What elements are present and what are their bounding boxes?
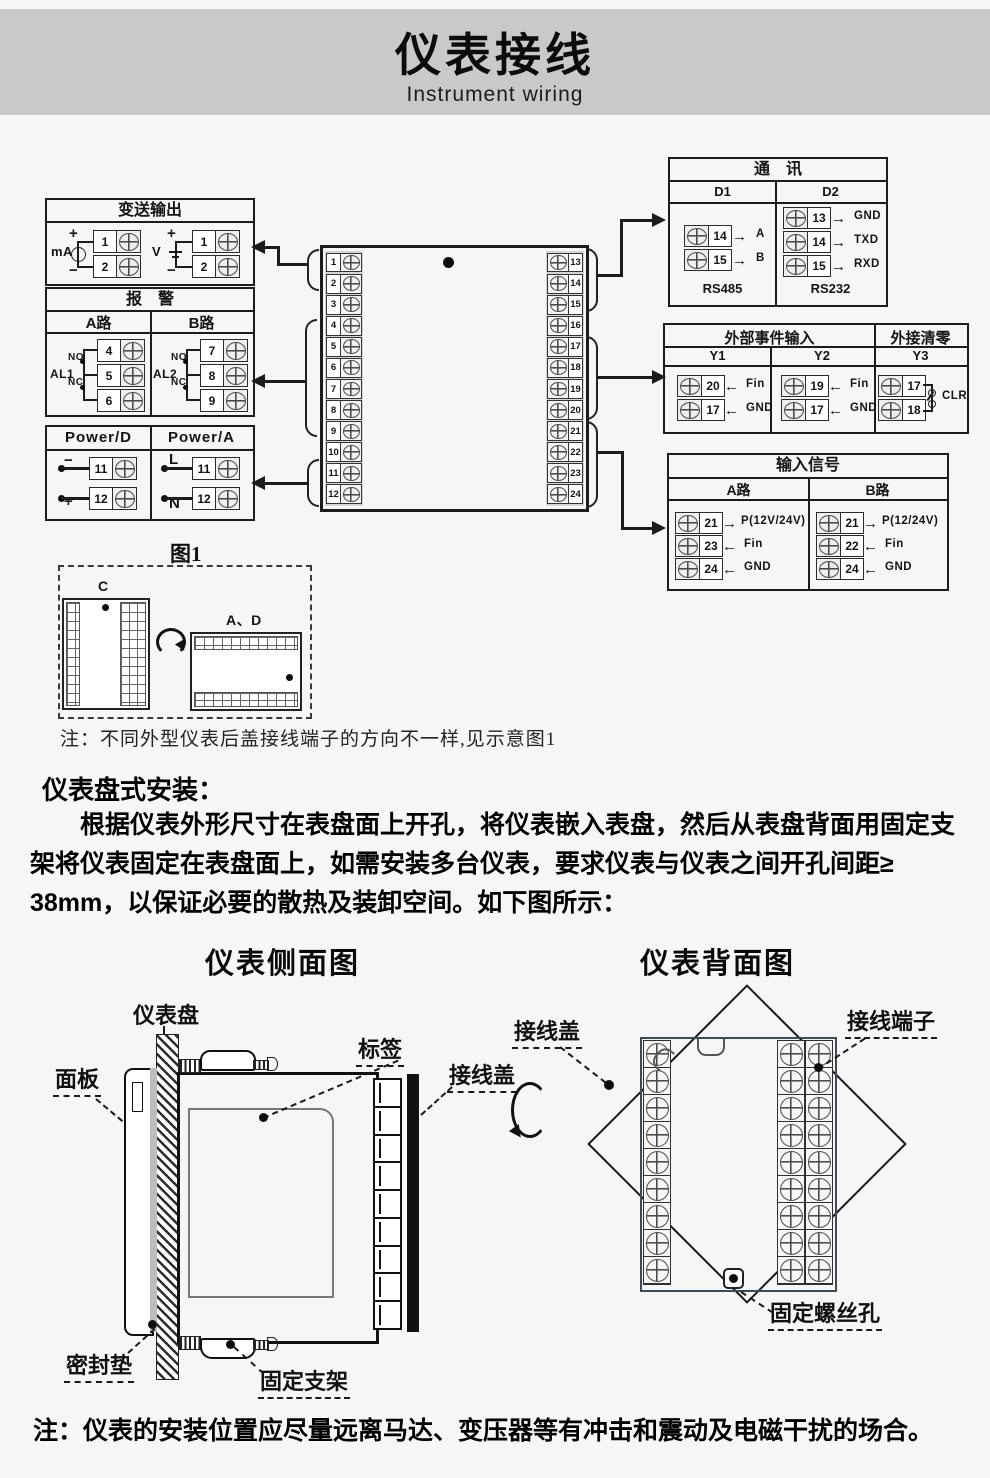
screw-icon [341, 464, 361, 482]
screw-icon [121, 365, 144, 386]
channel-a-header: A路 [669, 480, 808, 500]
signal-label: A [756, 228, 765, 240]
wire [186, 399, 200, 401]
screw-icon [224, 365, 247, 386]
arrow: → [722, 515, 736, 532]
screw-icon [806, 1068, 832, 1095]
connector [621, 451, 624, 530]
wire [175, 266, 192, 268]
screw-icon [879, 376, 902, 396]
shape-c [62, 598, 150, 710]
comm-box: 通 讯 D1 D2 14 → A 15 → B RS485 13 → GND 1… [668, 157, 888, 307]
brace [307, 249, 319, 291]
terminal: 11 [89, 457, 137, 480]
right-terminal-strip: 13 14 15 16 17 18 19 20 21 22 23 24 [546, 251, 584, 506]
divider [670, 202, 886, 204]
panel-board-label: 仪表盘 [133, 998, 199, 1030]
leader-dot [259, 1113, 268, 1122]
box-title: 通 讯 [670, 159, 886, 182]
arrow: ← [863, 538, 877, 555]
terminal: 24 [816, 558, 864, 580]
channel-a-header: A路 [47, 312, 150, 333]
screw-icon [685, 250, 708, 270]
power-d-header: Power/D [47, 429, 150, 446]
screw-icon [224, 390, 247, 411]
screw-icon [817, 559, 840, 579]
side-view-title: 仪表侧面图 [205, 940, 360, 982]
connector [620, 219, 623, 276]
terminal: 13 [783, 207, 831, 229]
arrow: → [732, 228, 746, 245]
signal-label: GND [850, 402, 877, 414]
screw-icon [113, 458, 136, 479]
current-source-icon [71, 247, 86, 262]
shape-ad-label: A、D [226, 610, 262, 630]
terminal: 9 [200, 389, 248, 412]
screw-dot [729, 1274, 738, 1283]
screw-icon [676, 513, 699, 533]
screw-icon [784, 256, 807, 276]
screw-head [267, 1057, 278, 1071]
screw-icon [341, 443, 361, 461]
comb-cell [375, 1247, 400, 1275]
signal-label: Fin [885, 538, 904, 550]
screw-icon [676, 559, 699, 579]
screw-icon [817, 513, 840, 533]
leader-dashed [559, 1046, 606, 1083]
terminal: 11 [192, 457, 240, 480]
screw-icon [548, 422, 568, 440]
screw-head [267, 1337, 278, 1351]
panel-wall [156, 1034, 179, 1380]
channel-b-header: B路 [808, 480, 947, 500]
arrow: → [831, 210, 845, 227]
rs232-label: RS232 [775, 281, 886, 296]
screw-icon [678, 400, 701, 420]
screw-icon [782, 376, 805, 396]
terminal: 14 [684, 225, 732, 247]
connector [596, 376, 653, 379]
fix-bracket-top [200, 1050, 256, 1071]
screw-icon [778, 1257, 804, 1284]
signal-label: Fin [850, 378, 869, 390]
comb-cell [375, 1163, 400, 1191]
event-title: 外部事件输入 [665, 327, 874, 348]
screw-icon [685, 226, 708, 246]
shape-ad [190, 632, 302, 711]
title-banner: 仪表接线 Instrument wiring [0, 9, 990, 115]
terminal: 2 [93, 255, 141, 278]
clr-label: CLR [942, 390, 967, 402]
terminal: 22 [816, 535, 864, 557]
rotate-arrow-icon [505, 1080, 549, 1142]
screw-icon [784, 208, 807, 228]
screw-icon [117, 256, 140, 277]
terminal: 23 [675, 535, 723, 557]
screw-icon [121, 340, 144, 361]
left-terminal-strip: 1 2 3 4 5 6 7 8 9 10 11 12 [325, 251, 363, 506]
screw-icon [644, 1122, 670, 1149]
leader-dot [604, 1080, 614, 1090]
install-paragraph: 根据仪表外形尺寸在表盘面上开孔，将仪表嵌入表盘，然后从表盘背面用固定支 架将仪表… [30, 806, 970, 923]
terminal: 18 [878, 399, 926, 421]
arrow: → [831, 234, 845, 251]
d1-header: D1 [670, 184, 775, 199]
terminal-strip [194, 692, 298, 707]
terminal: 6 [97, 389, 145, 412]
terminal: 8 [200, 364, 248, 387]
contact-dot [183, 359, 188, 364]
screw-icon [548, 317, 568, 335]
screw-icon [548, 464, 568, 482]
screw-icon [879, 400, 902, 420]
page-title: 仪表接线 [0, 19, 990, 85]
screw-icon [224, 340, 247, 361]
wire [61, 497, 89, 500]
screw-icon [548, 443, 568, 461]
body-label-area [188, 1108, 334, 1298]
screw-icon [341, 338, 361, 356]
brace [305, 319, 317, 437]
rs485-label: RS485 [670, 281, 775, 296]
shape-c-label: C [98, 578, 109, 594]
signal-label: Fin [746, 378, 765, 390]
wire [61, 467, 89, 470]
v-label: V [152, 244, 161, 259]
contact-dot [183, 385, 188, 390]
screw-icon [778, 1068, 804, 1095]
screw-icon [341, 485, 361, 503]
signal-label: Fin [744, 538, 763, 550]
screw-spring [179, 1336, 201, 1350]
plus-mark: + [69, 225, 78, 242]
bottom-note: 注：仪表的安装位置应尽量远离马达、变压器等有冲击和震动及电磁干扰的场合。 [33, 1412, 983, 1451]
screw-icon [341, 254, 361, 272]
terminal-strip [120, 602, 146, 706]
arrowhead-left [251, 476, 265, 490]
page-subtitle: Instrument wiring [0, 83, 990, 107]
center-terminal-block: 1 2 3 4 5 6 7 8 9 10 11 12 13 14 15 16 1… [320, 245, 589, 512]
signal-label: GND [746, 402, 773, 414]
screw-icon [778, 1176, 804, 1203]
fixing-screw-hole [723, 1268, 744, 1289]
screw-icon [817, 536, 840, 556]
clear-title: 外接清零 [874, 327, 967, 348]
wire [175, 241, 192, 243]
terminal: 5 [97, 364, 145, 387]
divider [808, 477, 810, 589]
wire [83, 374, 97, 376]
input-signal-box: 输入信号 A路 B路 21 → P(12V/24V) 23 ← Fin 24 ←… [667, 453, 949, 591]
screw-icon [113, 488, 136, 509]
screw-icon [548, 275, 568, 293]
screw-icon [548, 338, 568, 356]
screw-icon [644, 1095, 670, 1122]
arrow: → [732, 252, 746, 269]
back-view-title: 仪表背面图 [640, 940, 795, 982]
terminal-comb [373, 1078, 402, 1330]
terminal: 19 [781, 375, 829, 397]
leader-dot [148, 1320, 157, 1329]
connector [263, 380, 307, 383]
divider [150, 427, 152, 519]
screw-icon [778, 1122, 804, 1149]
leader-dot [814, 1063, 823, 1072]
screw-icon [216, 256, 239, 277]
box-title: 变送输出 [47, 200, 253, 223]
cover-bar [407, 1074, 419, 1332]
screw-icon [806, 1230, 832, 1257]
divider [874, 325, 876, 432]
connector [277, 246, 280, 265]
terminal: 20 [677, 375, 725, 397]
arrow: ← [863, 561, 877, 578]
screw-icon [778, 1095, 804, 1122]
terminal: 21 [675, 512, 723, 534]
wire [77, 266, 93, 268]
terminal: 15 [684, 249, 732, 271]
terminal: 15 [783, 255, 831, 277]
front-panel-label: 面板 [53, 1062, 101, 1094]
leader-dashed [420, 1086, 453, 1116]
screw-hole-label: 固定螺丝孔 [768, 1296, 882, 1328]
arrowhead-right [652, 213, 666, 227]
signal-label: GND [854, 210, 881, 222]
channel-b-header: B路 [150, 312, 253, 333]
arrow: ← [828, 378, 842, 395]
cover-label-back: 接线盖 [512, 1014, 582, 1046]
screw-icon [341, 380, 361, 398]
wire [186, 349, 200, 351]
signal-label: RXD [854, 258, 880, 270]
signal-label: TXD [854, 234, 879, 246]
screw-icon [341, 401, 361, 419]
signal-label: P(12/24V) [882, 515, 938, 527]
terminal: 17 [878, 375, 926, 397]
wire [164, 467, 192, 470]
screw-icon [121, 390, 144, 411]
screw-icon [548, 296, 568, 314]
screw-icon [216, 231, 239, 252]
screw-icon [806, 1095, 832, 1122]
screw-icon [782, 400, 805, 420]
screw-icon [548, 359, 568, 377]
terminal: 7 [200, 339, 248, 362]
arrowhead-left [251, 240, 265, 254]
signal-label: P(12V/24V) [741, 515, 805, 527]
screw-icon [644, 1149, 670, 1176]
divider [150, 312, 152, 415]
screw-icon [778, 1149, 804, 1176]
brace [586, 248, 598, 312]
wire [83, 399, 97, 401]
terminals-label: 接线端子 [845, 1004, 937, 1036]
screw-icon [216, 488, 239, 509]
wire [175, 241, 177, 267]
comb-cell [375, 1274, 400, 1302]
screw-spring [179, 1059, 201, 1073]
alarm-box: 报 警 A路 B路 AL1 NO NC 4 5 6 AL2 NO NC 7 8 … [45, 287, 255, 417]
terminal: 1 [93, 230, 141, 253]
contact-dot [80, 359, 85, 364]
screw-icon [806, 1203, 832, 1230]
terminal: 1 [192, 230, 240, 253]
terminal: 17 [677, 399, 725, 421]
wire [164, 497, 192, 500]
comb-cell [375, 1080, 400, 1108]
connector [277, 263, 308, 266]
terminal: 14 [783, 231, 831, 253]
arrowhead-right [652, 521, 666, 535]
rotate-arrow-icon [156, 628, 188, 656]
y1-header: Y1 [665, 348, 770, 363]
plus-mark: + [167, 225, 176, 242]
y3-header: Y3 [874, 348, 967, 363]
wire [186, 374, 200, 376]
ma-label: mA [51, 244, 73, 259]
screw-icon [806, 1257, 832, 1284]
terminal: 17 [781, 399, 829, 421]
arrow: ← [724, 378, 738, 395]
back-terminal-column [805, 1040, 833, 1285]
connector [621, 527, 653, 530]
plus-mark: + [64, 493, 73, 510]
orientation-dot [286, 674, 293, 681]
wire [77, 241, 93, 243]
arrow: → [831, 258, 845, 275]
arrow: ← [724, 402, 738, 419]
comb-cell [375, 1191, 400, 1219]
terminal: 12 [89, 487, 137, 510]
screw-icon [778, 1203, 804, 1230]
screw-icon [676, 536, 699, 556]
terminal: 24 [675, 558, 723, 580]
divider [665, 365, 967, 367]
screw-icon [778, 1230, 804, 1257]
orientation-dot [443, 257, 454, 268]
power-a-header: Power/A [150, 429, 253, 446]
connector [263, 246, 279, 249]
screw-icon [644, 1068, 670, 1095]
screw-icon [341, 422, 361, 440]
battery-mark [172, 256, 179, 258]
divider [770, 346, 772, 432]
power-box: Power/D Power/A − + 11 12 L N 11 12 [45, 425, 255, 521]
comb-cell [375, 1219, 400, 1247]
screw-icon [216, 458, 239, 479]
terminal: 4 [97, 339, 145, 362]
d2-header: D2 [775, 184, 886, 199]
l-mark: L [169, 451, 178, 468]
terminal-strip [66, 602, 80, 706]
arrow: ← [828, 402, 842, 419]
screw-icon [806, 1149, 832, 1176]
screw-icon [806, 1122, 832, 1149]
connector [596, 451, 624, 454]
figure1-title: 图1 [170, 538, 202, 568]
screw-icon [548, 380, 568, 398]
switch-contact [928, 400, 936, 408]
bezel-clip [132, 1082, 143, 1112]
screw-icon [644, 1257, 670, 1284]
box-title: 报 警 [47, 289, 253, 312]
screw-icon [341, 317, 361, 335]
connector [596, 274, 623, 277]
arrowhead-left [251, 374, 265, 388]
top-notch [697, 1039, 725, 1056]
gasket-bar [150, 1068, 157, 1332]
wire [83, 349, 97, 351]
connector [263, 482, 309, 485]
event-input-box: 外部事件输入 外接清零 Y1 Y2 Y3 20 ← Fin 17 ← GND 1… [663, 323, 969, 434]
screw-icon [784, 232, 807, 252]
screw-icon [341, 296, 361, 314]
screw-icon [548, 485, 568, 503]
transmitter-output-box: 变送输出 + − mA 1 2 + − V 1 2 [45, 198, 255, 286]
screw-icon [117, 231, 140, 252]
terminal: 12 [192, 487, 240, 510]
orientation-dot [102, 604, 109, 611]
comb-cell [375, 1302, 400, 1328]
screw-icon [341, 359, 361, 377]
screw-icon [644, 1230, 670, 1257]
contact-dot [80, 385, 85, 390]
connector [620, 219, 653, 222]
comb-cell [375, 1136, 400, 1164]
battery-mark [169, 251, 182, 253]
comb-cell [375, 1108, 400, 1136]
box-title: 输入信号 [669, 455, 947, 479]
screw-icon [806, 1176, 832, 1203]
arrow: ← [722, 538, 736, 555]
install-heading: 仪表盘式安装： [42, 770, 224, 807]
y2-header: Y2 [770, 348, 874, 363]
brace [586, 421, 598, 508]
back-terminal-column [643, 1040, 671, 1285]
bracket-label: 固定支架 [258, 1364, 350, 1396]
screw-icon [778, 1041, 804, 1068]
gasket-label: 密封垫 [64, 1348, 134, 1380]
terminal-strip [194, 636, 298, 650]
screw-icon [548, 401, 568, 419]
screw-icon [644, 1176, 670, 1203]
terminal: 21 [816, 512, 864, 534]
signal-label: GND [744, 561, 771, 573]
figure1-note: 注：不同外型仪表后盖接线端子的方向不一样,见示意图1 [60, 724, 556, 751]
arrow: → [863, 515, 877, 532]
signal-label: B [756, 252, 765, 264]
screw-icon [678, 376, 701, 396]
screw-icon [341, 275, 361, 293]
terminal: 2 [192, 255, 240, 278]
screw-icon [644, 1203, 670, 1230]
arrow: ← [722, 561, 736, 578]
screw-icon [548, 254, 568, 272]
signal-label: GND [885, 561, 912, 573]
back-terminal-column [777, 1040, 805, 1285]
